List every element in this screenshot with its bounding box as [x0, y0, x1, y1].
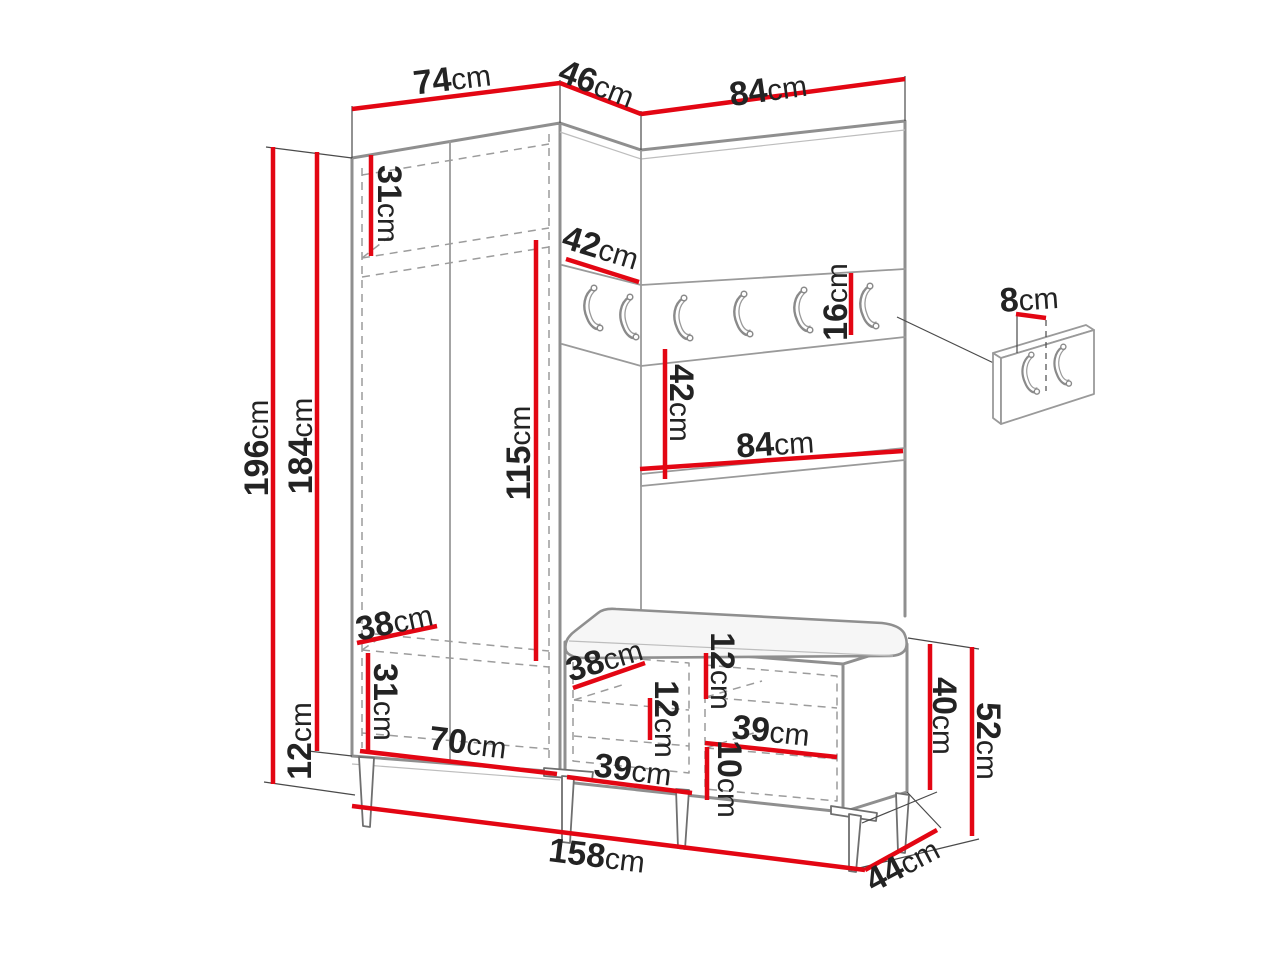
- dim-label-wardrobe-shelf-depth: 38cm: [352, 595, 436, 648]
- coat-hook-icon: [860, 283, 878, 329]
- dim-label-bench-right-gap: 12cm: [703, 632, 741, 710]
- panel-top-inner-line: [560, 130, 905, 159]
- dim-label-bench-left-gap: 12cm: [647, 680, 685, 758]
- coat-hook-icon: [734, 291, 752, 337]
- dim-label-hook-offset: 8cm: [998, 278, 1059, 320]
- dim-label-top-width-corner: 46cm: [554, 52, 640, 115]
- dimension-drawing-page: 74cm 46cm 84cm 196cm 184cm 12cm 31cm 42c…: [0, 0, 1277, 957]
- dim-label-body-height: 184cm: [282, 398, 320, 495]
- dim-label-rail-height: 16cm: [817, 263, 855, 341]
- dim-label-leg-height: 12cm: [281, 702, 319, 780]
- ext-bench-top-right: [908, 638, 979, 649]
- dim-label-bench-height: 52cm: [969, 702, 1007, 780]
- dim-label-top-shelf-height: 31cm: [370, 165, 408, 243]
- dim-label-top-width-panel: 84cm: [727, 66, 809, 114]
- side-hook-panel-detail: [897, 316, 1094, 424]
- dim-label-panel-width: 84cm: [735, 422, 815, 465]
- side-panel-edge: [993, 353, 1001, 424]
- leg-wardrobe-left: [359, 757, 374, 827]
- hook-panel-outline: [560, 121, 905, 616]
- dim-label-bench-bottom-gap: 10cm: [710, 740, 748, 818]
- leg-bench-center: [676, 789, 689, 849]
- leg-bench-right: [849, 814, 861, 872]
- dim-label-total-width: 158cm: [547, 831, 648, 881]
- ext-top-left: [266, 147, 352, 158]
- coat-hook-icon: [620, 294, 638, 340]
- ext-leg-bottom: [264, 782, 355, 795]
- leg-bench-back: [896, 793, 909, 853]
- dim-label-top-width-wardrobe: 74cm: [411, 55, 493, 102]
- dim-label-hanging-height: 115cm: [500, 406, 538, 501]
- coat-hook-icon: [674, 295, 692, 341]
- furniture-dimension-diagram: 74cm 46cm 84cm 196cm 184cm 12cm 31cm 42c…: [0, 0, 1277, 957]
- coat-hook-icon: [584, 285, 602, 331]
- dim-label-bottom-shelf-height: 31cm: [366, 663, 404, 741]
- coat-hook-icon: [794, 287, 812, 333]
- detail-leader-line: [897, 317, 1000, 366]
- dim-label-bench-inner-height: 40cm: [925, 677, 963, 755]
- side-panel-front: [1001, 330, 1094, 424]
- panel-top-and-right-edge: [560, 121, 905, 616]
- bench-right-side: [843, 644, 907, 812]
- dim-label-total-height: 196cm: [238, 400, 276, 497]
- dim-label-shelf-section-height: 42cm: [662, 364, 700, 442]
